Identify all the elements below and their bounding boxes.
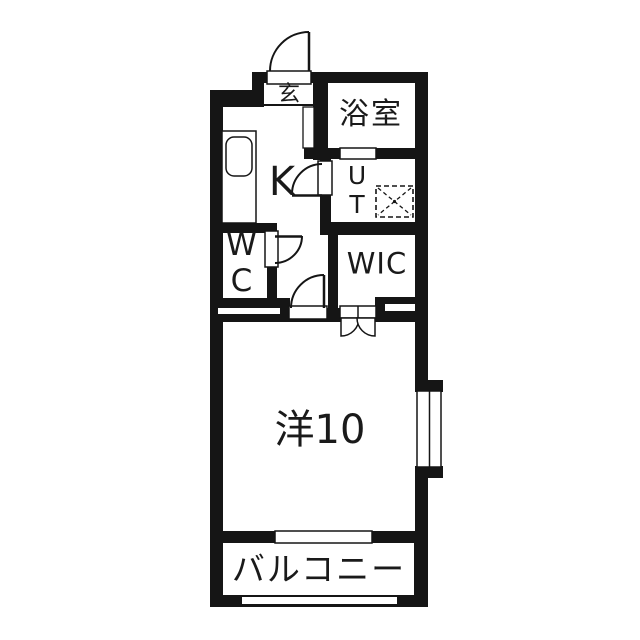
washer-center-dot bbox=[393, 200, 396, 203]
wall-ut-bottom bbox=[320, 222, 427, 235]
main-room-door-arc bbox=[291, 275, 324, 308]
bathroom-doorway bbox=[340, 148, 376, 159]
room-label-toilet: WC bbox=[226, 227, 257, 299]
floorplan-canvas: 玄 浴室 K UT WC WIC 洋10 バルコニー bbox=[0, 0, 640, 640]
bay-block-top bbox=[415, 380, 443, 392]
toilet-door-arc bbox=[275, 236, 302, 263]
room-label-closet: WIC bbox=[347, 250, 407, 279]
utility-doorway bbox=[318, 161, 332, 195]
kitchen-sink bbox=[226, 137, 252, 176]
shoe-cabinet bbox=[303, 107, 314, 148]
bay-window bbox=[415, 380, 443, 478]
room-label-genkan: 玄 bbox=[278, 84, 300, 106]
bifold-fan-right bbox=[357, 318, 375, 336]
entrance-door-arc bbox=[270, 32, 309, 71]
bifold-fan-left bbox=[341, 318, 359, 336]
main-room-doorway bbox=[289, 306, 327, 319]
genkan-fixtures bbox=[263, 105, 314, 148]
room-label-utility: UT bbox=[345, 161, 370, 219]
divider-slot-left bbox=[218, 308, 280, 314]
divider-slot-right bbox=[385, 304, 415, 311]
room-label-balcony: バルコニー bbox=[232, 553, 406, 586]
bay-block-bottom bbox=[415, 466, 443, 478]
closet-bifold-door bbox=[341, 318, 375, 336]
kitchen-fixtures bbox=[222, 131, 256, 223]
room-label-main-room: 洋10 bbox=[275, 410, 366, 450]
washer-space bbox=[376, 186, 413, 217]
balcony-window bbox=[275, 531, 372, 543]
balcony-rail-slot bbox=[242, 597, 397, 604]
room-label-bathroom: 浴室 bbox=[339, 100, 403, 130]
room-label-kitchen: K bbox=[269, 162, 295, 202]
floorplan-drawing bbox=[0, 0, 640, 640]
